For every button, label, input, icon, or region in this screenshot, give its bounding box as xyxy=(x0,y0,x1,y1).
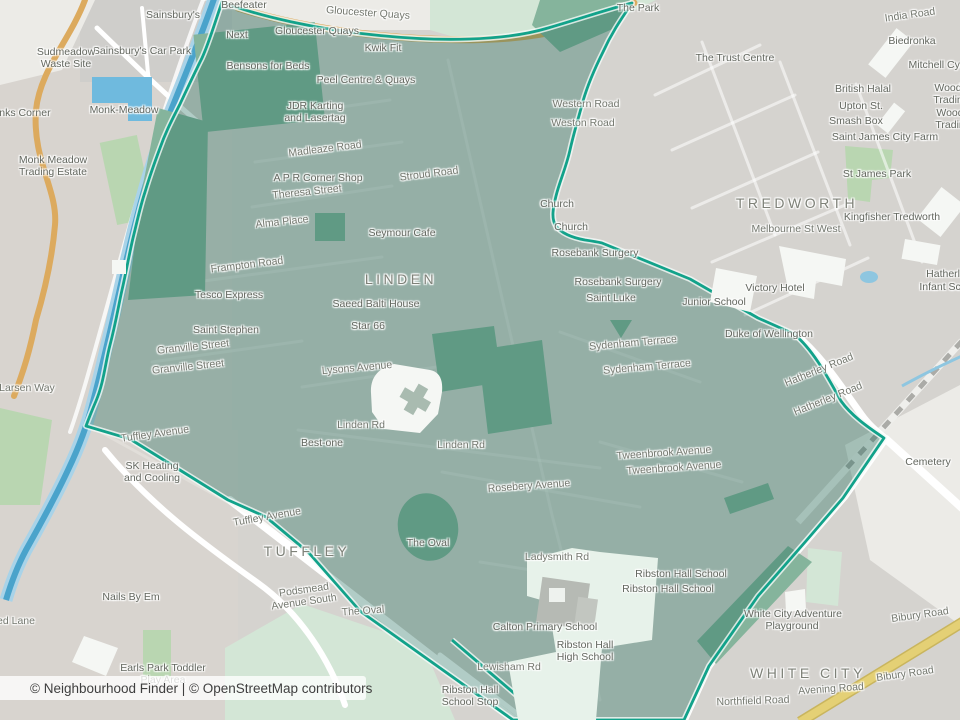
victory-hotel-building xyxy=(779,246,846,299)
base-map xyxy=(0,0,960,720)
map-viewport[interactable]: Sainsbury'sSainsbury's Car ParkBeefeater… xyxy=(0,0,960,720)
pond xyxy=(860,271,878,283)
stream xyxy=(902,356,960,386)
white-city-building xyxy=(785,589,806,612)
attribution-bar: © Neighbourhood Finder | © OpenStreetMap… xyxy=(0,676,366,700)
attribution-text: © Neighbourhood Finder | xyxy=(30,681,189,696)
osm-contributors-link[interactable]: © OpenStreetMap contributors xyxy=(189,681,372,696)
infant-school-building xyxy=(902,239,941,265)
